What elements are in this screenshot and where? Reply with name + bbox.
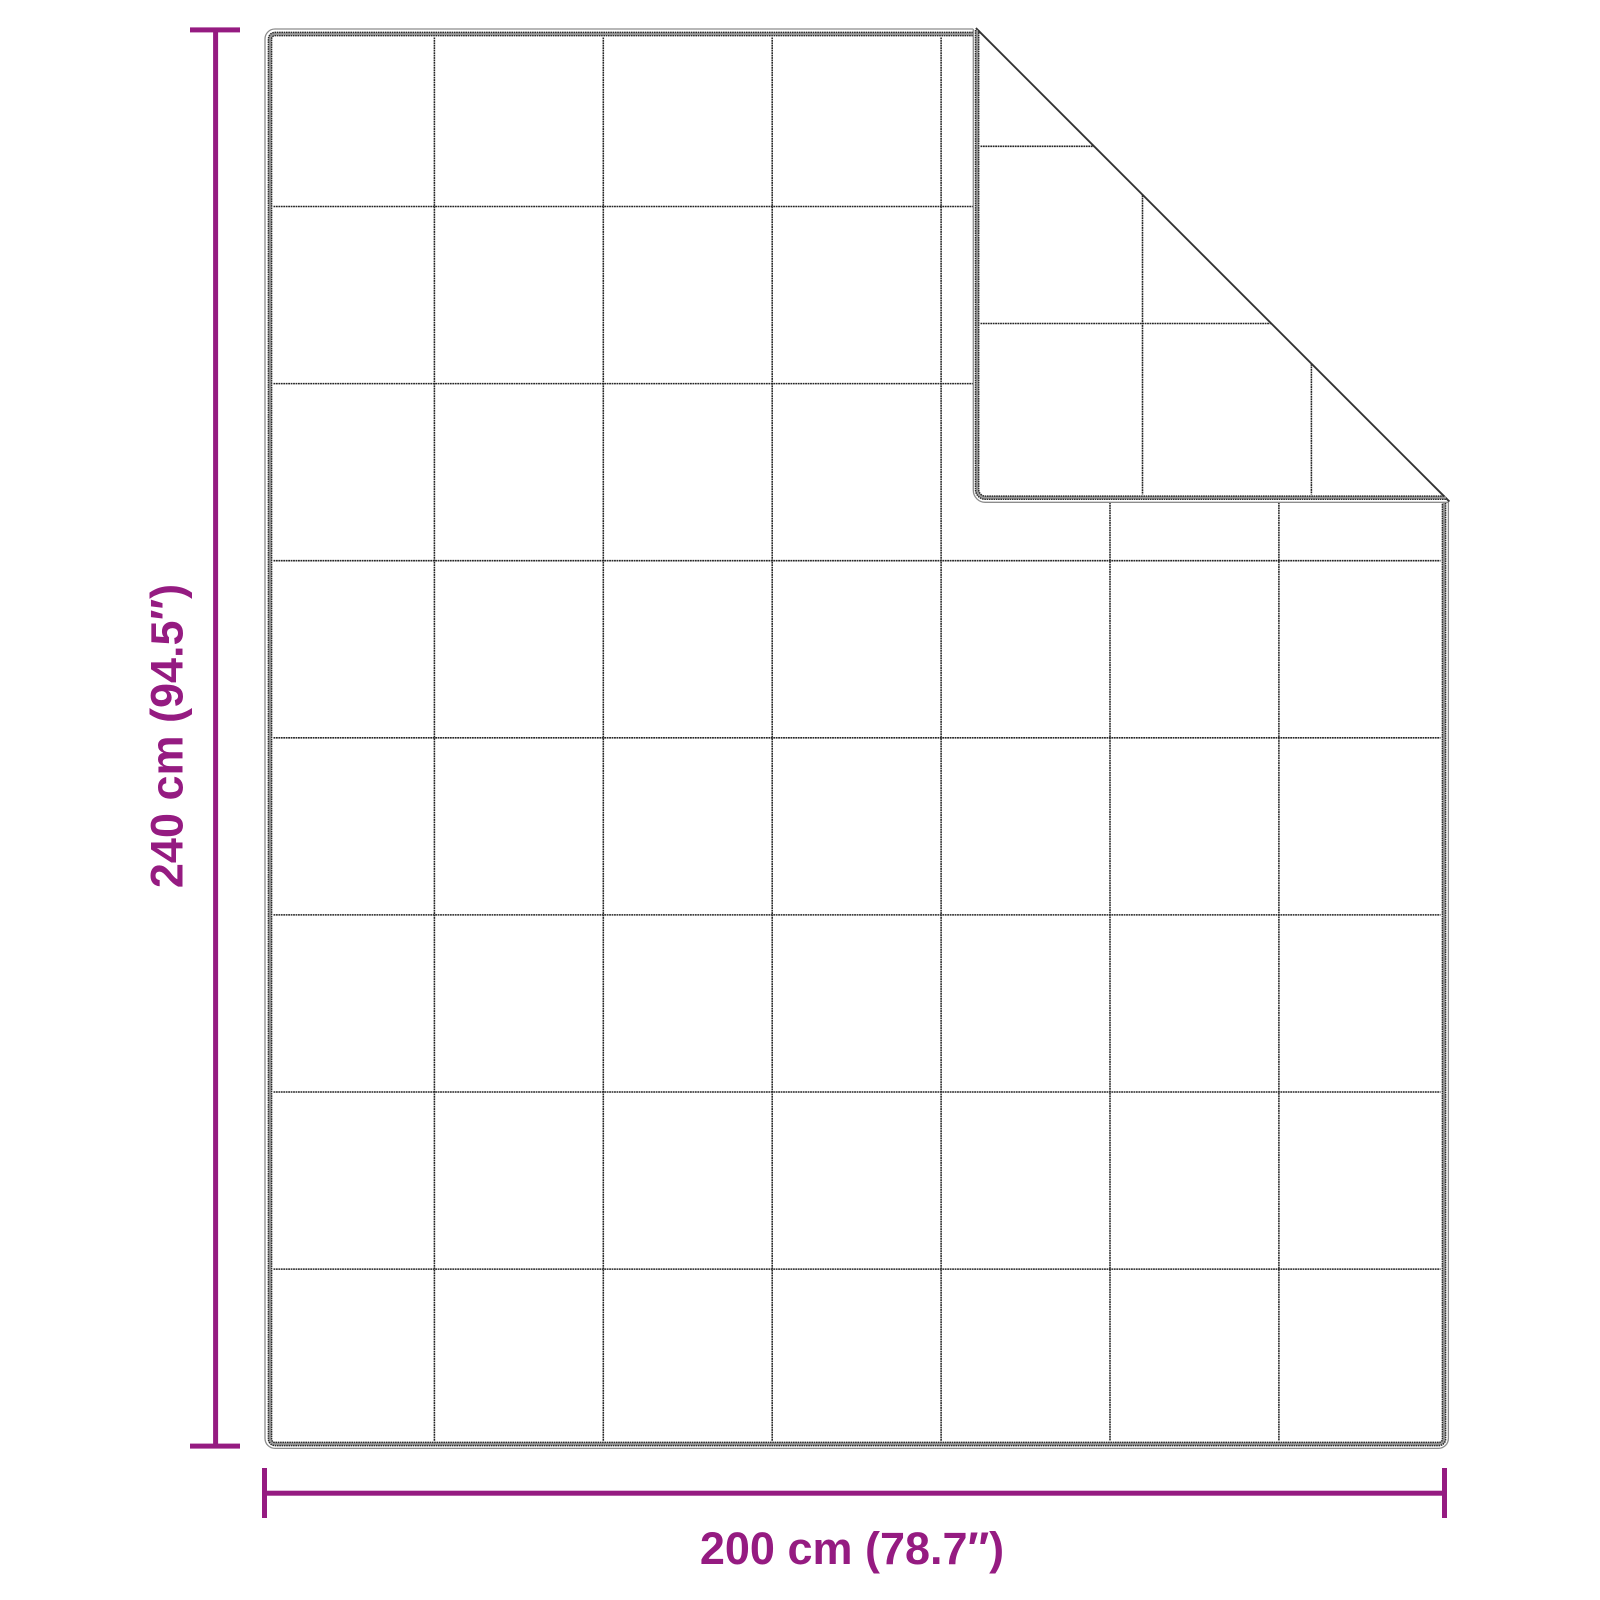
- svg-text:240 cm (94.5″): 240 cm (94.5″): [142, 584, 193, 888]
- svg-text:200 cm (78.7″): 200 cm (78.7″): [700, 1523, 1004, 1574]
